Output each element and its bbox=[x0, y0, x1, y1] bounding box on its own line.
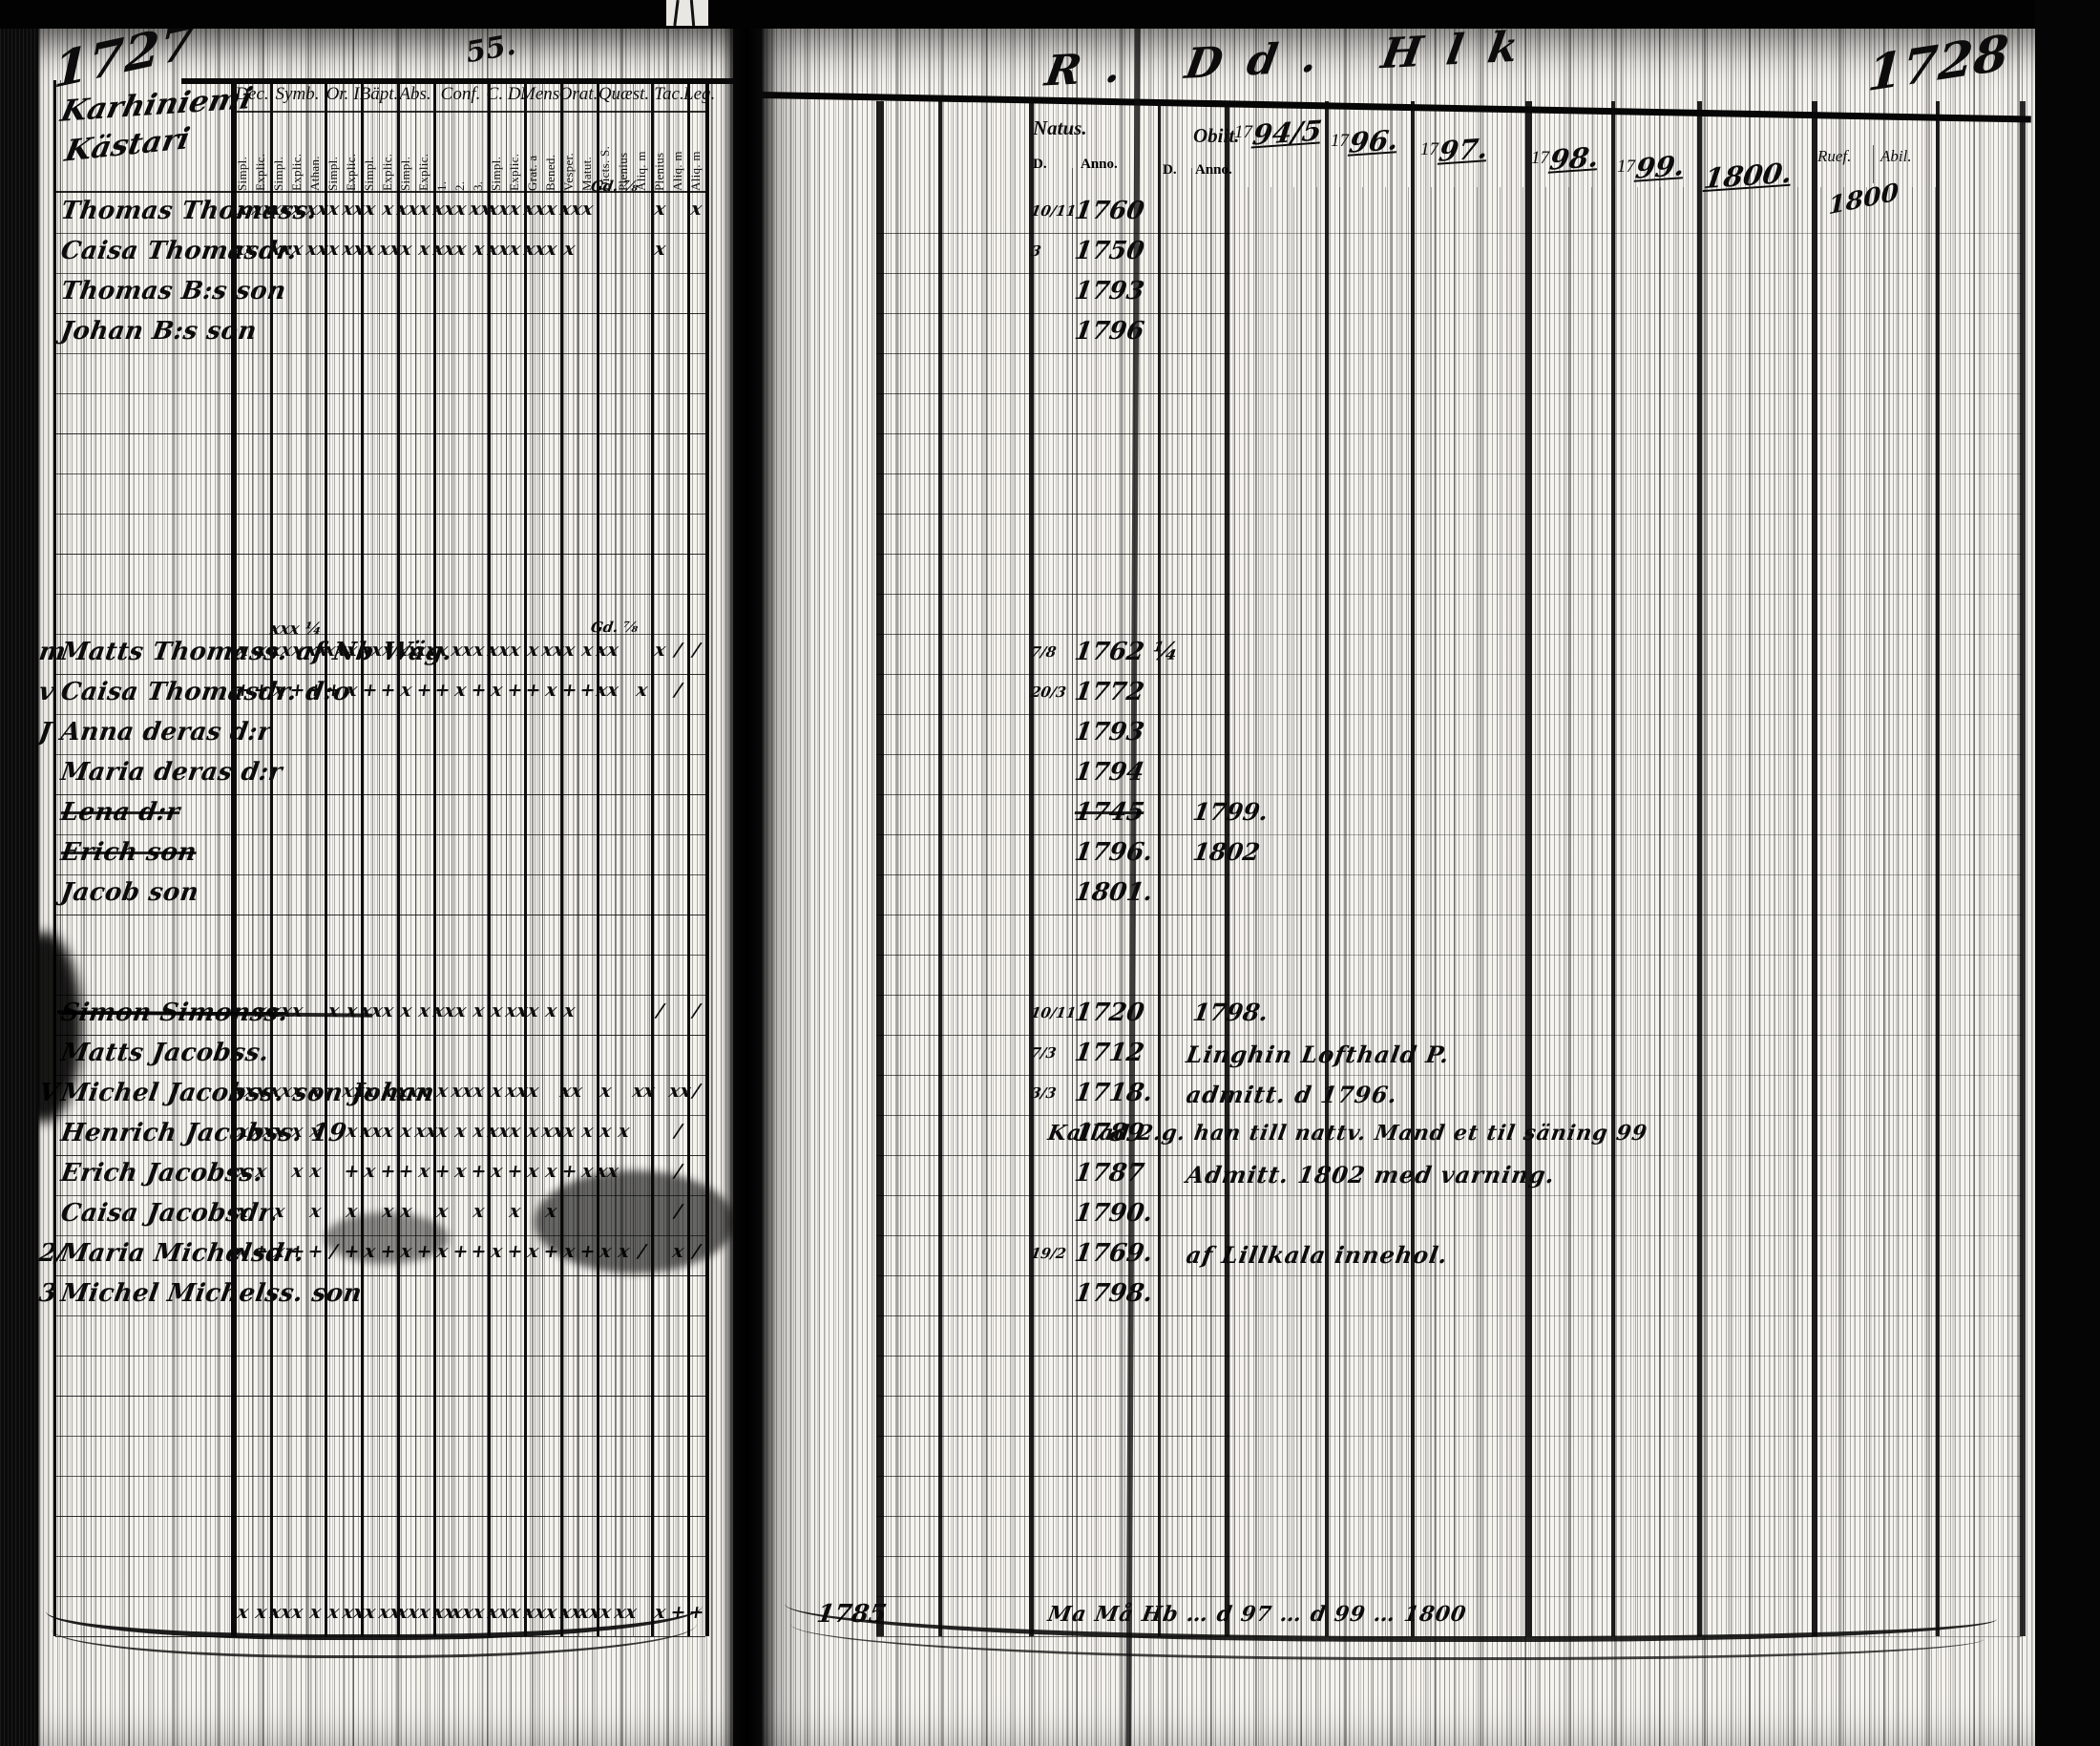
row-rule bbox=[876, 514, 2022, 515]
subcolumn-label: Explic. bbox=[289, 115, 305, 191]
row-rule bbox=[55, 915, 705, 915]
mark-cell: x bbox=[232, 1201, 253, 1222]
natus-year-value: 1798. bbox=[1073, 1279, 1155, 1308]
scanned-parish-register-spread: 1727 55. Karhiniemi Kästari Dec.Simpl.Ex… bbox=[0, 0, 2100, 1746]
year-handwritten-part: 97. bbox=[1437, 132, 1490, 167]
column-group-label: Quæst. bbox=[593, 84, 655, 109]
table-row: Maria deras d:r bbox=[38, 754, 733, 794]
natus-year-value: 1790. bbox=[1073, 1199, 1155, 1228]
margin-mark: 3 bbox=[37, 1279, 59, 1308]
table-row: JAnna deras d:r bbox=[38, 714, 733, 754]
mark-cell: x bbox=[595, 1081, 616, 1102]
mark-cell: xx bbox=[595, 640, 616, 661]
overwritten-marks: xxx ¼ bbox=[268, 620, 323, 639]
subcolumn-label: Explic. bbox=[380, 115, 396, 191]
table-row: 1798. bbox=[762, 1275, 2035, 1315]
row-rule bbox=[55, 1315, 705, 1316]
row-name: Michel Michelss. son bbox=[59, 1279, 283, 1308]
subcolumn-label: 3. bbox=[471, 115, 487, 191]
subcolumn-label: Grat. a bbox=[525, 115, 541, 191]
mark-cell: xx bbox=[558, 1081, 579, 1102]
subcolumn-label: Simpl. bbox=[235, 115, 251, 191]
right-table: Natus.Obiit.D.Anno.D.Anno.1794/51796.179… bbox=[762, 25, 2035, 1746]
row-rule bbox=[876, 1315, 2022, 1316]
mark-cell: x bbox=[250, 1161, 271, 1182]
row-rule bbox=[876, 353, 2022, 354]
row-name: Erich son bbox=[59, 838, 283, 867]
table-row: 3Michel Michelss. son bbox=[38, 1275, 733, 1315]
row-rule bbox=[876, 1516, 2022, 1517]
subcolumn-label: Simpl. bbox=[362, 115, 378, 191]
subcolumn-label: Explic. bbox=[253, 115, 269, 191]
margin-mark: J bbox=[37, 718, 53, 747]
table-row: 1789Kallad 2.g. han till nattv. Mand et … bbox=[762, 1115, 2035, 1155]
subcolumn-label: Simpl. bbox=[489, 115, 505, 191]
obiit-year-value: 1798. bbox=[1191, 999, 1270, 1026]
mark-cell: x bbox=[304, 1081, 325, 1102]
year-handwritten-part: 1800. bbox=[1702, 157, 1795, 195]
left-black-border bbox=[0, 0, 38, 1746]
row-rule bbox=[55, 393, 705, 394]
table-row: 3/31718.admitt. d 1796. bbox=[762, 1075, 2035, 1115]
ink-blot bbox=[535, 1170, 735, 1273]
table-row: Johan B:s son bbox=[38, 313, 733, 353]
natus-day-value: 20/3 bbox=[1030, 684, 1068, 701]
table-row: Thomas Thomass.xxxxxxxxxxxxxxxxxxxxxxxxx… bbox=[38, 193, 733, 233]
row-rule bbox=[876, 1436, 2022, 1437]
mark-cell: x bbox=[286, 1000, 307, 1021]
table-row: 1790. bbox=[762, 1195, 2035, 1235]
row-name: Thomas B:s son bbox=[59, 277, 283, 305]
column-group-label: Conf. bbox=[430, 84, 492, 109]
row-rule bbox=[55, 353, 705, 354]
mark-cell: / bbox=[685, 640, 706, 661]
subcolumn-label: Simpl. bbox=[325, 115, 342, 191]
handwritten-note: admitt. d 1796. bbox=[1185, 1081, 1400, 1108]
year-handwritten-part: 98. bbox=[1547, 140, 1601, 176]
mark-cell: x bbox=[468, 1201, 489, 1222]
natus-day-value: 19/2 bbox=[1030, 1245, 1068, 1262]
row-rule bbox=[876, 473, 2022, 474]
natus-year-value: 1718. bbox=[1073, 1079, 1155, 1107]
mark-cell: x bbox=[613, 1121, 634, 1142]
mark-cell: x bbox=[558, 239, 579, 260]
subcolumn-label: Explic. bbox=[416, 115, 432, 191]
table-row: 1796 bbox=[762, 313, 2035, 353]
table-row: 1794 bbox=[762, 754, 2035, 794]
mark-cell: x bbox=[522, 1081, 543, 1102]
natus-sub-anno: Anno. bbox=[1081, 157, 1118, 173]
row-name: Lena d:r bbox=[59, 798, 283, 827]
center-fold bbox=[722, 0, 775, 1746]
mark-cell: xx bbox=[595, 680, 616, 701]
binding-slit bbox=[666, 0, 708, 26]
left-table: Dec.Simpl.Explic.Symb.Simpl.Explic.Athan… bbox=[38, 25, 733, 1746]
row-rule bbox=[55, 1356, 705, 1357]
row-annotation: Gd. ⅞ bbox=[590, 619, 640, 636]
natus-day-value: 3 bbox=[1030, 242, 1042, 260]
row-rule bbox=[876, 433, 2022, 434]
row-rule bbox=[55, 1396, 705, 1397]
natus-day-value: 3/3 bbox=[1030, 1084, 1058, 1102]
year-handwritten-part: 96. bbox=[1347, 123, 1400, 158]
row-name: Anna deras d:r bbox=[59, 718, 283, 747]
row-rule bbox=[55, 955, 705, 956]
table-row: 19/21769.af Lillkala innehol. bbox=[762, 1235, 2035, 1275]
page-left: 1727 55. Karhiniemi Kästari Dec.Simpl.Ex… bbox=[38, 25, 733, 1746]
mark-cell: x bbox=[649, 199, 670, 220]
mark-cell: x bbox=[577, 199, 598, 220]
mark-cell: x bbox=[504, 1201, 525, 1222]
subcolumn-label: Vesper. bbox=[561, 115, 577, 191]
row-rule bbox=[55, 1556, 705, 1557]
row-rule bbox=[876, 1556, 2022, 1557]
row-rule bbox=[876, 1356, 2022, 1357]
row-rule bbox=[876, 915, 2022, 915]
table-row: Thomas B:s son bbox=[38, 273, 733, 313]
mark-cell: / bbox=[667, 1121, 688, 1142]
natus-sub-d: D. bbox=[1033, 157, 1047, 173]
natus-year-value: 1796. bbox=[1073, 838, 1155, 867]
subcolumn-label: Aliq. m bbox=[688, 115, 704, 191]
table-row: Henrich Jacobss. 19xxxxxxxxxxxxxxxxxxxxx… bbox=[38, 1115, 733, 1155]
row-rule bbox=[55, 1516, 705, 1517]
row-rule bbox=[55, 433, 705, 434]
obiit-sub-d: D. bbox=[1163, 162, 1177, 179]
handwritten-note: af Lillkala innehol. bbox=[1185, 1241, 1450, 1269]
row-name: Johan B:s son bbox=[59, 317, 283, 346]
subcolumn-label: 1. bbox=[434, 115, 451, 191]
year-handwritten-part: 94/5 bbox=[1250, 115, 1324, 152]
subcolumn-label: Plenius bbox=[652, 115, 668, 191]
row-rule bbox=[876, 955, 2022, 956]
natus-year-value: 1712 bbox=[1073, 1039, 1146, 1067]
table-row: Simon Simonss.xxxxxxxxxxxxxxxxxxxxx// bbox=[38, 995, 733, 1035]
table-row: Caisa Thomasdr.xxxxxxxxxxxxxxxxxxxxxxxxx… bbox=[38, 233, 733, 273]
table-row: 1796.1802 bbox=[762, 834, 2035, 874]
table-row: Erich son bbox=[38, 834, 733, 874]
natus-day-value: 10/11 bbox=[1030, 202, 1078, 220]
top-black-border bbox=[0, 0, 2100, 29]
subcolumn-label: Explic. bbox=[507, 115, 523, 191]
table-row: 31750 bbox=[762, 233, 2035, 273]
table-row: Matts Jacobss. bbox=[38, 1035, 733, 1075]
row-rule bbox=[876, 594, 2022, 595]
table-row: 1793 bbox=[762, 714, 2035, 754]
obiit-year-value: 1799. bbox=[1191, 798, 1270, 826]
subcolumn-label: 2. bbox=[452, 115, 469, 191]
mark-cell: x bbox=[649, 239, 670, 260]
subcolumn-label: Simpl. bbox=[271, 115, 287, 191]
column-group-label: Symb. bbox=[266, 84, 328, 109]
mark-cell: x bbox=[558, 1000, 579, 1021]
mark-cell: xx bbox=[232, 239, 253, 260]
row-name: Maria deras d:r bbox=[59, 758, 283, 787]
subcolumn-label: Simpl. bbox=[398, 115, 414, 191]
mark-cell: / bbox=[685, 1000, 706, 1021]
page-right: 1728 R. Dd. Hlk Natus.Obiit.D.Anno.D.Ann… bbox=[762, 25, 2035, 1746]
handwritten-note: Linghin Lofthald P. bbox=[1185, 1041, 1452, 1068]
mark-cell: x bbox=[268, 1201, 289, 1222]
subcolumn-label: Explic. bbox=[344, 115, 360, 191]
obiit-sub-anno: Anno. bbox=[1195, 162, 1232, 179]
table-row: mMatts Thomass. af Nb Wäg.xxxxxxxxxxxxxx… bbox=[38, 634, 733, 674]
obiit-year-value: 1802 bbox=[1191, 838, 1262, 866]
mark-cell: x bbox=[631, 680, 652, 701]
mark-cell: x bbox=[685, 199, 706, 220]
subcolumn-label: Bened. bbox=[543, 115, 559, 191]
row-rule bbox=[55, 594, 705, 595]
row-rule bbox=[55, 1476, 705, 1477]
table-row: 7/81762 ¼ bbox=[762, 634, 2035, 674]
table-row: 20/31772 bbox=[762, 674, 2035, 714]
table-row: 10/1117201798. bbox=[762, 995, 2035, 1035]
year-printed-part: 17 bbox=[1234, 122, 1252, 143]
last-col-rule bbox=[1873, 145, 1874, 183]
row-rule bbox=[55, 514, 705, 515]
table-row: 7/31712Linghin Lofthald P. bbox=[762, 1035, 2035, 1075]
row-annotation: Gd. ⅞ bbox=[590, 178, 640, 195]
row-rule bbox=[876, 1476, 2022, 1477]
natus-day-value: 7/8 bbox=[1030, 643, 1058, 661]
row-rule bbox=[55, 473, 705, 474]
handwritten-note: Admitt. 1802 med varning. bbox=[1185, 1161, 1558, 1189]
table-row: vCaisa Thomasdr. d:o++x+++x++x++x+x++x++… bbox=[38, 674, 733, 714]
year-printed-part: 17 bbox=[1531, 148, 1549, 169]
row-rule bbox=[55, 1436, 705, 1437]
natus-year-value: 1787 bbox=[1073, 1159, 1146, 1188]
table-row: 1801. bbox=[762, 874, 2035, 915]
natus-day-value: 10/11 bbox=[1030, 1004, 1078, 1021]
table-row: 1793 bbox=[762, 273, 2035, 313]
table-row: Jacob son bbox=[38, 874, 733, 915]
mark-cell: / bbox=[685, 1081, 706, 1102]
natus-year-value: 1769. bbox=[1073, 1239, 1155, 1268]
year-printed-part: 17 bbox=[1617, 157, 1635, 178]
row-rule bbox=[876, 1396, 2022, 1397]
year-printed-part: 17 bbox=[1420, 139, 1438, 160]
last-col-header-1: Ruef. bbox=[1817, 147, 1851, 166]
row-name: Jacob son bbox=[59, 878, 283, 907]
row-rule bbox=[876, 554, 2022, 555]
last-col-header-2: Abil. bbox=[1880, 147, 1912, 166]
table-row: 10/111760 bbox=[762, 193, 2035, 233]
row-rule bbox=[55, 554, 705, 555]
row-rule bbox=[876, 393, 2022, 394]
ink-blot bbox=[325, 1212, 449, 1264]
year-handwritten-part: 99. bbox=[1633, 149, 1687, 184]
table-row: 1787Admitt. 1802 med varning. bbox=[762, 1155, 2035, 1195]
right-black-border bbox=[2035, 0, 2100, 1746]
table-row: VMichel Jacobss. son Johanxxxxxxxxxxxxxx… bbox=[38, 1075, 733, 1115]
table-row: Lena d:r bbox=[38, 794, 733, 834]
mark-cell: / bbox=[649, 1000, 670, 1021]
subcolumn-label: Aliq. m bbox=[670, 115, 686, 191]
table-row: 17451799. bbox=[762, 794, 2035, 834]
mark-cell: xx bbox=[631, 1081, 652, 1102]
natus-year-value: 1762 ¼ bbox=[1073, 638, 1181, 666]
margin-mark: v bbox=[37, 678, 56, 706]
row-name: Matts Jacobss. bbox=[59, 1039, 283, 1067]
natus-day-value: 7/3 bbox=[1030, 1044, 1058, 1062]
mark-cell: x bbox=[304, 1201, 325, 1222]
subcolumn-label: Athan. bbox=[307, 115, 324, 191]
year-printed-part: 17 bbox=[1331, 131, 1349, 152]
header-rule bbox=[762, 92, 2031, 123]
mark-cell: x bbox=[304, 1121, 325, 1142]
mark-cell: / bbox=[667, 680, 688, 701]
natus-year-value: 1801. bbox=[1073, 878, 1155, 907]
mark-cell: x bbox=[431, 1201, 452, 1222]
mark-cell: x bbox=[304, 1161, 325, 1182]
handwritten-note: Kallad 2.g. han till nattv. Mand et til … bbox=[1046, 1121, 1649, 1146]
